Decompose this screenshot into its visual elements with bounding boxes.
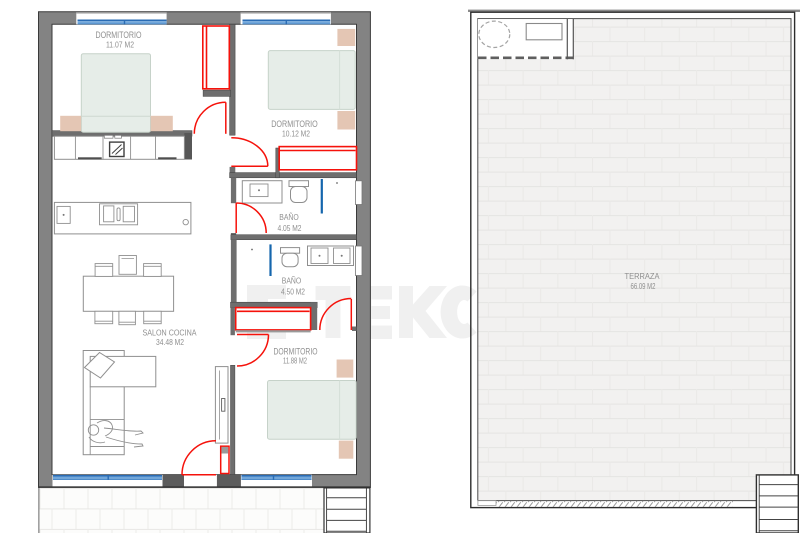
svg-text:4.05 M2: 4.05 M2 [278,224,302,233]
svg-text:4.50 M2: 4.50 M2 [281,288,305,297]
svg-text:34.48 M2: 34.48 M2 [156,338,184,347]
svg-text:BAÑO: BAÑO [279,212,299,222]
svg-text:11.88 M2: 11.88 M2 [283,357,307,366]
svg-text:DORMITORIO: DORMITORIO [271,119,318,129]
svg-text:DORMITORIO: DORMITORIO [96,30,142,40]
svg-text:TERRAZA: TERRAZA [625,271,660,281]
svg-text:66.09 M2: 66.09 M2 [631,282,656,291]
svg-text:BAÑO: BAÑO [282,276,302,286]
svg-text:SALON COCINA: SALON COCINA [143,328,197,338]
svg-text:11.07 M2: 11.07 M2 [106,41,134,50]
svg-text:DORMITORIO: DORMITORIO [274,347,318,357]
svg-text:10.12 M2: 10.12 M2 [282,130,310,139]
